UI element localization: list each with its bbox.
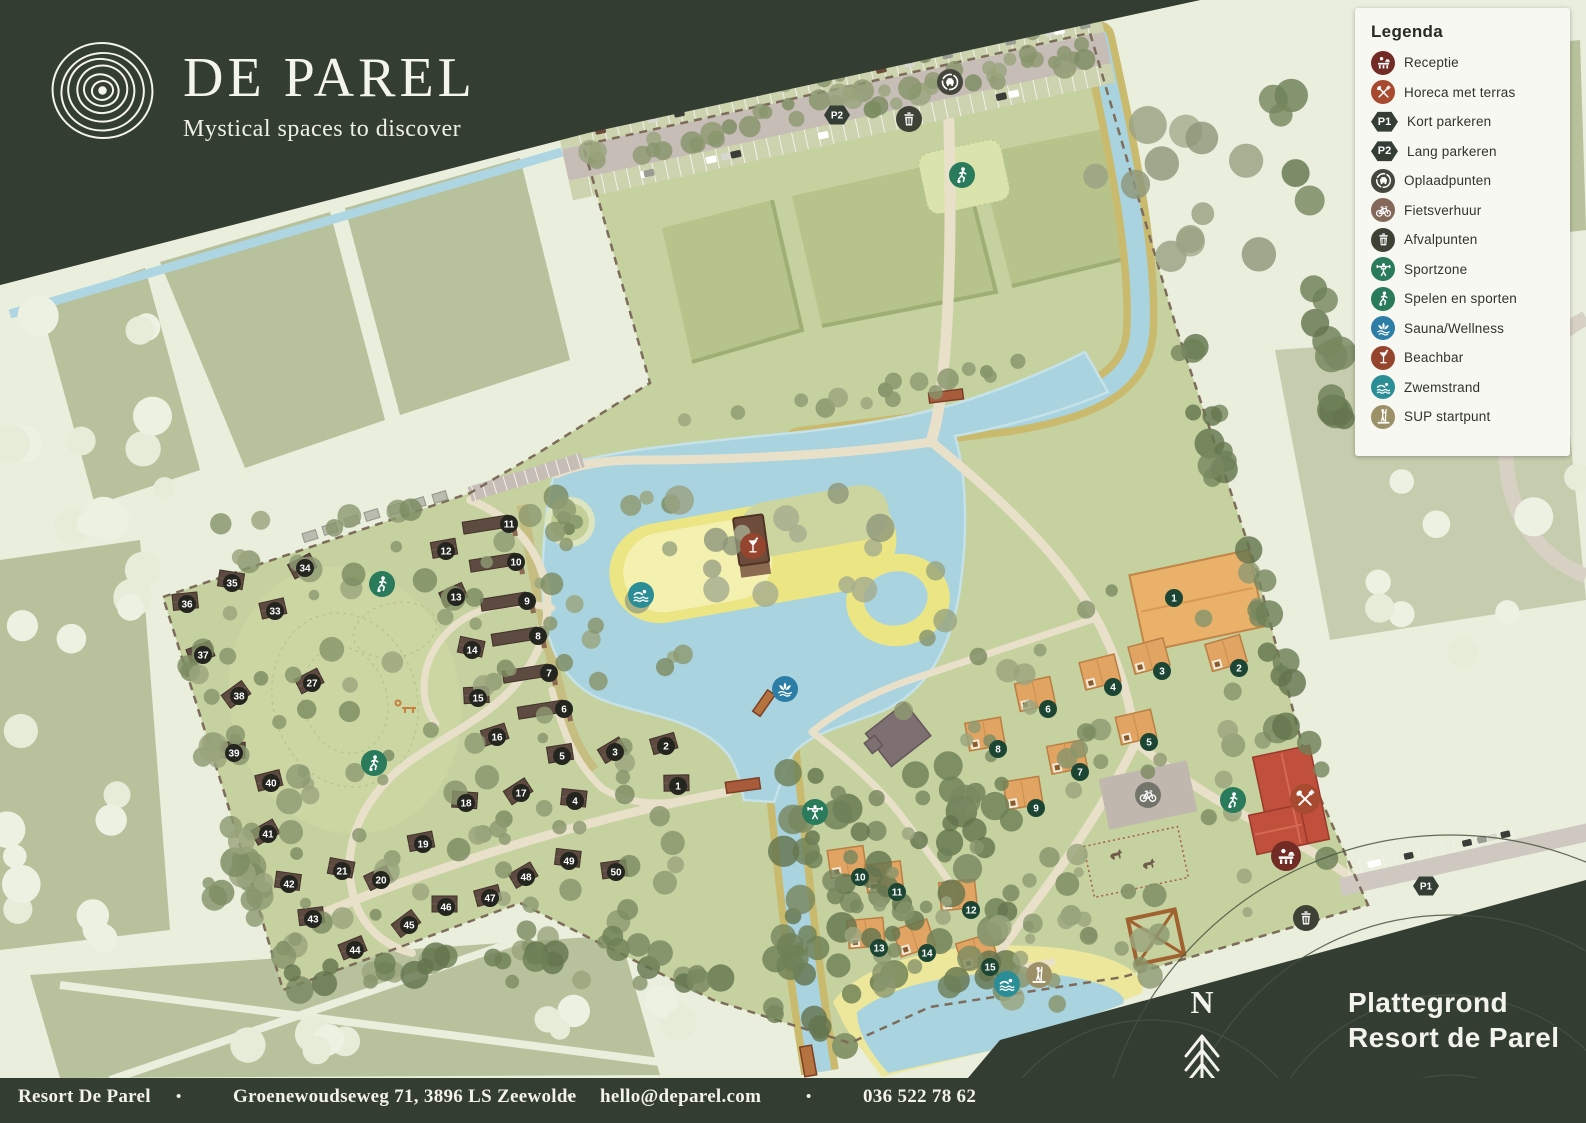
footer-separator: • xyxy=(567,1089,573,1106)
svg-text:12: 12 xyxy=(440,547,452,558)
legend-label: Beachbar xyxy=(1404,350,1463,365)
lodge-badge-3: 3 xyxy=(606,743,624,761)
lodge-badge-43: 43 xyxy=(304,910,322,928)
lodge-badge-6: 6 xyxy=(1039,700,1057,718)
legend-label: Spelen en sporten xyxy=(1404,291,1517,306)
lodge-badge-17: 17 xyxy=(512,784,530,802)
legend-label: Sportzone xyxy=(1404,262,1467,277)
legend-label: Horeca met terras xyxy=(1404,85,1515,100)
lodge-badge-9: 9 xyxy=(1027,799,1045,817)
lodge-badge-19: 19 xyxy=(414,835,432,853)
svg-text:1: 1 xyxy=(675,782,681,793)
legend-item-fiets: Fietsverhuur xyxy=(1355,196,1570,226)
legend-panel: Legenda Receptie Horeca met terrasP1Kort… xyxy=(1355,8,1570,456)
map-canvas: 1234567891011121314151617181920212733343… xyxy=(0,0,1586,1123)
spelen-icon xyxy=(1371,287,1395,311)
svg-text:10: 10 xyxy=(854,873,866,884)
svg-text:47: 47 xyxy=(484,894,496,905)
footer-item-0: Resort De Parel xyxy=(18,1086,151,1108)
svg-text:20: 20 xyxy=(375,876,387,887)
lodge-badge-41: 41 xyxy=(259,825,277,843)
legend-label: Receptie xyxy=(1404,55,1459,70)
lodge-badge-45: 45 xyxy=(400,916,418,934)
lodge-badge-13: 13 xyxy=(870,939,888,957)
svg-text:15: 15 xyxy=(984,963,996,974)
brand-tagline: Mystical spaces to discover xyxy=(183,116,476,143)
lodge-badge-3: 3 xyxy=(1153,662,1171,680)
lodge-badge-4: 4 xyxy=(1104,678,1122,696)
receptie-icon xyxy=(1371,51,1395,75)
poi-zwemstrand-zuid-icon xyxy=(994,971,1020,997)
lodge-badge-2: 2 xyxy=(1230,659,1248,677)
legend-label: Fietsverhuur xyxy=(1404,203,1481,218)
footer-separator: • xyxy=(176,1089,182,1106)
legend-item-beachbar: Beachbar xyxy=(1355,343,1570,373)
poi-afvalpunt-oost-icon xyxy=(1293,905,1319,931)
svg-text:14: 14 xyxy=(466,646,478,657)
legend-item-afval: Afvalpunten xyxy=(1355,225,1570,255)
poi-sup-startpunt-icon xyxy=(1026,962,1052,988)
svg-text:21: 21 xyxy=(336,867,348,878)
lodge-badge-48: 48 xyxy=(517,868,535,886)
lodge-badge-46: 46 xyxy=(437,898,455,916)
lodge-badge-4: 4 xyxy=(566,792,584,810)
brand-name: DE PAREL xyxy=(183,50,476,106)
svg-text:17: 17 xyxy=(515,789,527,800)
lodge-badge-16: 16 xyxy=(488,728,506,746)
svg-text:16: 16 xyxy=(491,733,503,744)
lodge-badge-40: 40 xyxy=(262,774,280,792)
svg-text:6: 6 xyxy=(1045,705,1051,716)
lodge-badge-8: 8 xyxy=(529,627,547,645)
poi-sauna-wellness-icon xyxy=(772,676,798,702)
lodge-badge-11: 11 xyxy=(500,515,518,533)
svg-text:15: 15 xyxy=(472,694,484,705)
oplaad-icon xyxy=(1371,169,1395,193)
poi-afvalpunt-noord-icon xyxy=(896,106,922,132)
horeca-icon xyxy=(1371,80,1395,104)
p1-hex-icon: P1 xyxy=(1371,111,1398,133)
svg-text:8: 8 xyxy=(995,745,1001,756)
svg-text:7: 7 xyxy=(546,669,552,680)
lodge-badge-21: 21 xyxy=(333,862,351,880)
legend-item-receptie: Receptie xyxy=(1355,48,1570,78)
north-label: N xyxy=(1190,984,1213,1021)
lodge-badge-14: 14 xyxy=(463,641,481,659)
svg-text:8: 8 xyxy=(535,632,541,643)
legend-label: Sauna/Wellness xyxy=(1404,321,1504,336)
pearl-rings-icon xyxy=(40,28,165,153)
sport-icon xyxy=(1371,257,1395,281)
lodge-badge-13: 13 xyxy=(447,588,465,606)
svg-text:9: 9 xyxy=(1033,804,1039,815)
svg-text:38: 38 xyxy=(233,692,245,703)
svg-text:11: 11 xyxy=(892,888,903,899)
lodge-badge-1: 1 xyxy=(1165,589,1183,607)
lodge-badge-27: 27 xyxy=(303,674,321,692)
svg-text:39: 39 xyxy=(228,749,240,760)
svg-text:45: 45 xyxy=(403,921,415,932)
svg-text:P1: P1 xyxy=(1420,882,1433,893)
svg-text:36: 36 xyxy=(181,600,193,611)
legend-item-horeca: Horeca met terras xyxy=(1355,78,1570,108)
lodge-badge-35: 35 xyxy=(223,574,241,592)
poi-zwemstrand-eiland-icon xyxy=(628,582,654,608)
svg-text:13: 13 xyxy=(873,944,885,955)
poi-sportzone-icon xyxy=(802,799,828,825)
legend-item-sauna: Sauna/Wellness xyxy=(1355,314,1570,344)
lodge-badge-15: 15 xyxy=(981,958,999,976)
svg-text:33: 33 xyxy=(269,607,281,618)
lodge-badge-15: 15 xyxy=(469,689,487,707)
svg-text:9: 9 xyxy=(524,597,530,608)
poi-spelen-oost-icon xyxy=(1220,787,1246,813)
lodge-badge-38: 38 xyxy=(230,687,248,705)
lodge-badge-12: 12 xyxy=(962,901,980,919)
lodge-badge-36: 36 xyxy=(178,595,196,613)
svg-text:2: 2 xyxy=(1236,664,1242,675)
svg-text:48: 48 xyxy=(520,873,532,884)
lodge-badge-8: 8 xyxy=(989,740,1007,758)
lodge-badge-10: 10 xyxy=(507,553,525,571)
svg-text:11: 11 xyxy=(504,520,515,531)
zwem-icon xyxy=(1371,375,1395,399)
lodge-badge-14: 14 xyxy=(918,944,936,962)
lodge-badge-37: 37 xyxy=(194,646,212,664)
footer-item-3: 036 522 78 62 xyxy=(863,1086,976,1108)
svg-text:27: 27 xyxy=(306,679,318,690)
svg-text:19: 19 xyxy=(417,840,429,851)
svg-text:43: 43 xyxy=(307,915,319,926)
legend-title: Legenda xyxy=(1371,22,1570,42)
svg-text:5: 5 xyxy=(1146,738,1152,749)
legend-item-sport: Sportzone xyxy=(1355,255,1570,285)
svg-text:35: 35 xyxy=(226,579,238,590)
footer-item-2: hello@deparel.com xyxy=(600,1086,761,1108)
map-title: Plattegrond Resort de Parel xyxy=(1348,986,1559,1055)
lodge-badge-12: 12 xyxy=(437,542,455,560)
lodge-badge-33: 33 xyxy=(266,602,284,620)
lodge-badge-5: 5 xyxy=(553,747,571,765)
svg-text:18: 18 xyxy=(460,799,472,810)
svg-text:7: 7 xyxy=(1077,768,1083,779)
svg-text:46: 46 xyxy=(440,903,452,914)
svg-text:3: 3 xyxy=(612,748,618,759)
svg-text:13: 13 xyxy=(450,593,462,604)
fiets-icon xyxy=(1371,198,1395,222)
sauna-icon xyxy=(1371,316,1395,340)
lodge-badge-5: 5 xyxy=(1140,733,1158,751)
beachbar-icon xyxy=(1371,346,1395,370)
legend-item-p1: P1Kort parkeren xyxy=(1355,107,1570,137)
lodge-badge-2: 2 xyxy=(657,737,675,755)
lodge-badge-42: 42 xyxy=(280,875,298,893)
svg-text:49: 49 xyxy=(563,857,575,868)
svg-text:P2: P2 xyxy=(831,111,844,122)
legend-label: SUP startpunt xyxy=(1404,409,1490,424)
lodge-badge-39: 39 xyxy=(225,744,243,762)
map-title-line2: Resort de Parel xyxy=(1348,1021,1559,1056)
legend-item-oplaad: Oplaadpunten xyxy=(1355,166,1570,196)
lodge-badge-50: 50 xyxy=(607,863,625,881)
legend-label: Afvalpunten xyxy=(1404,232,1478,247)
legend-label: Kort parkeren xyxy=(1407,114,1491,129)
footer-item-1: Groenewoudseweg 71, 3896 LS Zeewolde xyxy=(233,1086,576,1108)
legend-label: Oplaadpunten xyxy=(1404,173,1491,188)
lodge-badge-1: 1 xyxy=(669,777,687,795)
poi-horeca-icon xyxy=(1290,784,1320,814)
poi-spelen-west-2-icon xyxy=(361,750,387,776)
poi-receptie-icon xyxy=(1271,841,1301,871)
svg-text:41: 41 xyxy=(262,830,274,841)
svg-text:12: 12 xyxy=(965,906,977,917)
lodge-badge-9: 9 xyxy=(518,592,536,610)
svg-text:10: 10 xyxy=(510,558,522,569)
sup-icon xyxy=(1371,405,1395,429)
legend-item-zwem: Zwemstrand xyxy=(1355,373,1570,403)
lodge-badge-20: 20 xyxy=(372,871,390,889)
svg-text:1: 1 xyxy=(1171,594,1177,605)
legend-label: Zwemstrand xyxy=(1404,380,1480,395)
svg-text:40: 40 xyxy=(265,779,277,790)
svg-text:44: 44 xyxy=(349,946,361,957)
resort-map-poster: 1234567891011121314151617181920212733343… xyxy=(0,0,1586,1123)
lodge-badge-6: 6 xyxy=(555,700,573,718)
poi-beachbar-icon xyxy=(740,533,766,559)
map-title-line1: Plattegrond xyxy=(1348,986,1559,1021)
brand-logo: DE PAREL Mystical spaces to discover xyxy=(40,28,476,153)
lodge-badge-10: 10 xyxy=(851,868,869,886)
poi-oplaadpunten-icon xyxy=(937,69,963,95)
svg-text:37: 37 xyxy=(197,651,209,662)
p2-hex-icon: P2 xyxy=(1371,140,1398,162)
svg-text:5: 5 xyxy=(559,752,565,763)
legend-item-sup: SUP startpunt xyxy=(1355,402,1570,432)
lodge-badge-11: 11 xyxy=(888,883,906,901)
svg-text:42: 42 xyxy=(283,880,295,891)
lodge-badge-34: 34 xyxy=(296,559,314,577)
lodge-badge-44: 44 xyxy=(346,941,364,959)
svg-text:34: 34 xyxy=(299,564,311,575)
lodge-badge-7: 7 xyxy=(1071,763,1089,781)
poi-fietsverhuur-icon xyxy=(1135,782,1161,808)
lodge-badge-18: 18 xyxy=(457,794,475,812)
svg-text:6: 6 xyxy=(561,705,567,716)
poi-spelen-veld-icon xyxy=(949,162,975,188)
footer-bar: Resort De Parel•Groenewoudseweg 71, 3896… xyxy=(0,1078,1586,1123)
lodge-badge-47: 47 xyxy=(481,889,499,907)
svg-text:3: 3 xyxy=(1159,667,1165,678)
svg-text:2: 2 xyxy=(663,742,669,753)
svg-text:4: 4 xyxy=(1110,683,1116,694)
svg-text:14: 14 xyxy=(921,949,933,960)
lodge-badge-49: 49 xyxy=(560,852,578,870)
lodge-badge-7: 7 xyxy=(540,664,558,682)
legend-item-spelen: Spelen en sporten xyxy=(1355,284,1570,314)
legend-item-p2: P2Lang parkeren xyxy=(1355,137,1570,167)
afval-icon xyxy=(1371,228,1395,252)
poi-spelen-west-1-icon xyxy=(369,571,395,597)
svg-text:4: 4 xyxy=(572,797,578,808)
svg-text:50: 50 xyxy=(610,868,622,879)
legend-label: Lang parkeren xyxy=(1407,144,1497,159)
footer-separator: • xyxy=(806,1089,812,1106)
